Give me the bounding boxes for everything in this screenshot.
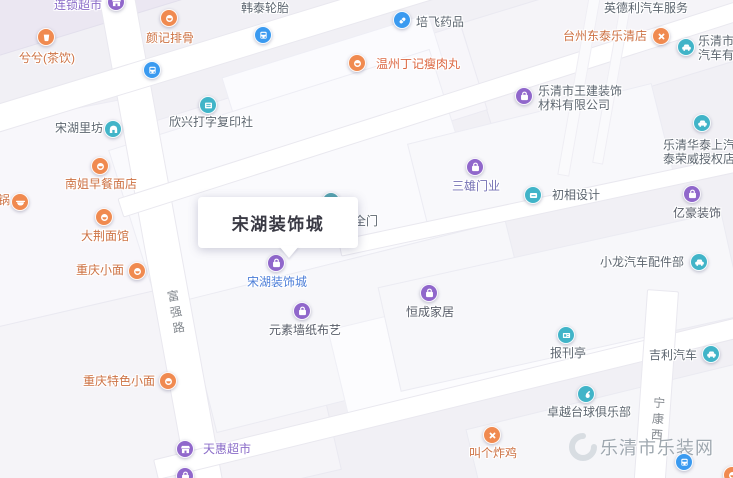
guo-edge-pot-icon (11, 193, 29, 211)
wenzhou-dingji-shourouwan-bowl-icon (348, 54, 366, 72)
bus-stop-2-bus-icon (143, 61, 161, 79)
sanxiong-menye-bag-icon (466, 158, 484, 176)
hengcheng-jiaju-label: 恒成家居 (406, 305, 454, 319)
poi-corner-cut-bowl-icon (723, 466, 733, 478)
tianhui-chaoshi-label: 天惠超市 (203, 442, 251, 456)
jili-qiche-label: 吉利汽车 (649, 348, 697, 362)
zhuoyue-taiqiu-julebu-billiard-icon (577, 385, 595, 403)
wangjian-zhuangshi-cailiao-label: 乐清市王建装饰材料有限公司 (538, 84, 622, 112)
jiaoge-zhaji-label: 叫个炸鸡 (469, 446, 517, 460)
jiaoge-zhaji-cross-icon (483, 426, 501, 444)
yueqing-huatai-rongwei-label: 乐清华泰上汽泰荣威授权店 (663, 138, 733, 166)
dajing-mianguan-bowl-icon (95, 208, 113, 226)
baokanting-label: 报刊亭 (550, 346, 586, 360)
guo-edge-label: 锅 (0, 193, 10, 207)
jili-qiche-car-icon (702, 345, 720, 363)
yanji-paigu-bowl-icon (160, 9, 178, 27)
peifei-yaopin-pill-icon (393, 11, 411, 29)
bus-stop-3-bus-icon (675, 453, 693, 471)
zhuoyue-taiqiu-julebu-label: 卓越台球俱乐部 (547, 405, 631, 419)
nanjie-zaocan-miandian-label: 南姐早餐面店 (65, 177, 137, 191)
yingdeli-qiche-fuwu-label: 英德利汽车服务 (604, 1, 688, 15)
chongqing-xiaomian-bowl-icon (128, 262, 146, 280)
yueqing-dongtai-auto-car-icon (677, 38, 695, 56)
chongqing-tese-xiaomian-bowl-icon (159, 372, 177, 390)
map-canvas[interactable]: 富强路宁康西 乐清市乐装网 连锁超市兮兮(茶饮)颜记排骨韩泰轮胎培飞药品温州丁记… (0, 0, 733, 478)
taizhou-dongtai-yueqingdian-label: 台州东泰乐清店 (563, 29, 647, 43)
hengcheng-jiaju-bag-icon (420, 284, 438, 302)
chongqing-xiaomian-label: 重庆小面 (76, 263, 124, 277)
wangjian-zhuangshi-cailiao-bag-icon (515, 87, 533, 105)
xiaolong-qiche-peijianbu-label: 小龙汽车配件部 (600, 255, 684, 269)
yihao-zhuangshi-bag-icon (683, 185, 701, 203)
songhu-lifang-arch-icon (104, 120, 122, 138)
yueqing-huatai-rongwei-car-icon (693, 114, 711, 132)
nanjie-zaocan-miandian-bowl-icon (91, 157, 109, 175)
wenzhou-dingji-shourouwan-label: 温州丁记瘦肉丸 (376, 57, 460, 71)
xinxing-dazi-fuyinshe-label: 欣兴打字复印社 (169, 115, 253, 129)
bus-stop-1-bus-icon (254, 26, 272, 44)
sanxiong-menye-label: 三雄门业 (452, 179, 500, 193)
dajing-mianguan-label: 大荆面馆 (81, 229, 129, 243)
hantai-luntai-label: 韩泰轮胎 (241, 1, 289, 15)
poi-callout[interactable]: 宋湖装饰城 (198, 197, 358, 248)
yueqing-dongtai-auto-label: 乐清市汽车有 (698, 34, 733, 62)
poi-bottom-cut-bag-icon (176, 467, 194, 478)
chuxiang-sheji-card-icon (524, 186, 542, 204)
xiaolong-qiche-peijianbu-car-icon (690, 253, 708, 271)
poi-callout-pointer (279, 246, 299, 258)
yuansu-qiangzhi-buyi-bag-icon (293, 302, 311, 320)
peifei-yaopin-label: 培飞药品 (416, 15, 464, 29)
songhu-lifang-label: 宋湖里坊 (55, 121, 103, 135)
xixi-chayin-tea-icon (37, 28, 55, 46)
baokanting-news-icon (557, 326, 575, 344)
yihao-zhuangshi-label: 亿豪装饰 (673, 206, 721, 220)
tianhui-chaoshi-store-icon (176, 440, 194, 458)
watermark-logo-icon (566, 430, 600, 464)
taizhou-dongtai-yueqingdian-cross-icon (652, 27, 670, 45)
watermark-text: 乐清市乐装网 (600, 434, 714, 460)
chongqing-tese-xiaomian-label: 重庆特色小面 (83, 374, 155, 388)
yanji-paigu-label: 颜记排骨 (146, 31, 194, 45)
songhu-zhuangshicheng-label: 宋湖装饰城 (247, 275, 307, 289)
xixi-chayin-label: 兮兮(茶饮) (19, 51, 75, 65)
xinxing-dazi-fuyinshe-printer-icon (199, 96, 217, 114)
yuansu-qiangzhi-buyi-label: 元素墙纸布艺 (269, 323, 341, 337)
chuxiang-sheji-label: 初相设计 (552, 188, 600, 202)
liansuo-chaoshi-label: 连锁超市 (54, 0, 102, 12)
poi-callout-title: 宋湖装饰城 (232, 210, 325, 235)
